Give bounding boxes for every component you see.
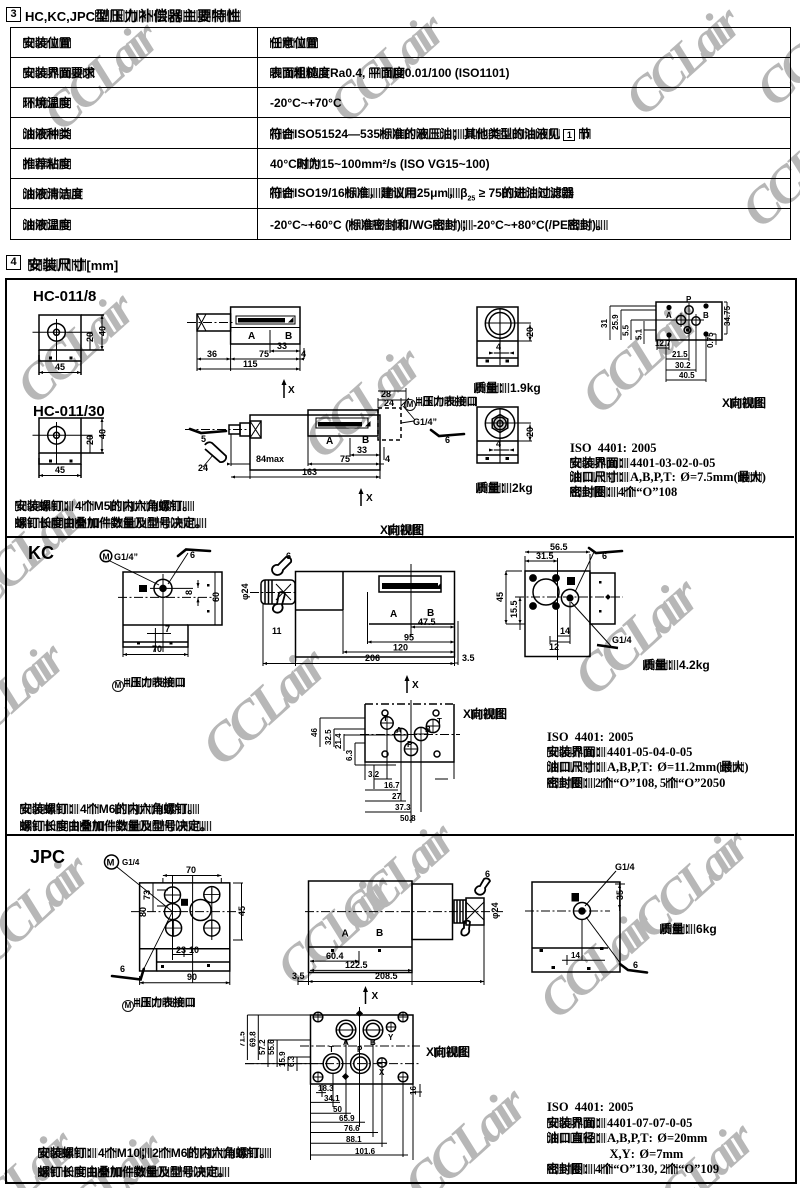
svg-text:4: 4 (301, 349, 306, 359)
svg-text:21.5: 21.5 (672, 350, 688, 359)
svg-text:X: X (379, 1068, 385, 1077)
svg-text:20: 20 (85, 435, 95, 445)
svg-text:115: 115 (243, 359, 258, 369)
svg-text:84max: 84max (256, 454, 284, 464)
svg-text:4: 4 (496, 439, 501, 449)
svg-text:24: 24 (198, 463, 208, 473)
svg-text:73: 73 (142, 890, 152, 900)
svg-text:30.2: 30.2 (675, 361, 691, 370)
svg-text:B: B (703, 311, 709, 320)
svg-text:35: 35 (615, 890, 625, 900)
svg-text:33: 33 (357, 445, 367, 455)
svg-text:4: 4 (385, 454, 390, 464)
svg-text:24: 24 (384, 398, 394, 408)
svg-text:G1/4: G1/4 (122, 858, 140, 867)
svg-text:36: 36 (207, 349, 217, 359)
svg-text:φ24: φ24 (240, 584, 250, 600)
svg-text:16: 16 (409, 1086, 418, 1095)
svg-text:6: 6 (445, 435, 450, 445)
svg-text:88.1: 88.1 (346, 1135, 362, 1144)
svg-text:46: 46 (310, 728, 319, 737)
svg-text:M: M (103, 552, 110, 562)
svg-text:31.5: 31.5 (536, 551, 554, 561)
svg-text:21.4: 21.4 (334, 733, 343, 749)
svg-text:31: 31 (600, 319, 609, 328)
svg-text:76.6: 76.6 (344, 1124, 360, 1133)
svg-text:T: T (329, 1045, 334, 1054)
svg-text:6.3: 6.3 (287, 1055, 296, 1067)
svg-text:A: A (248, 331, 255, 342)
svg-text:3.2: 3.2 (368, 770, 380, 779)
svg-text:57.2: 57.2 (258, 1039, 267, 1055)
svg-text:G1/4”: G1/4” (114, 552, 138, 562)
svg-text:50: 50 (333, 1105, 342, 1114)
svg-text:50.8: 50.8 (400, 814, 416, 823)
svg-text:40.5: 40.5 (679, 371, 695, 380)
svg-text:6.3: 6.3 (345, 749, 354, 761)
svg-text:Y: Y (388, 1033, 394, 1042)
svg-text:208.5: 208.5 (375, 971, 398, 981)
svg-text:6: 6 (485, 869, 490, 879)
svg-text:20: 20 (85, 332, 95, 342)
svg-text:B: B (425, 725, 431, 734)
svg-text:3.5: 3.5 (292, 971, 305, 981)
svg-text:18.3: 18.3 (318, 1084, 334, 1093)
svg-text:70: 70 (186, 865, 196, 875)
svg-text:B: B (376, 928, 383, 939)
svg-text:10: 10 (189, 945, 199, 955)
svg-text:5.1: 5.1 (635, 328, 644, 340)
svg-text:14: 14 (560, 626, 570, 636)
svg-text:60: 60 (211, 592, 221, 602)
svg-text:90: 90 (187, 972, 197, 982)
svg-text:75: 75 (340, 454, 350, 464)
svg-text:60.4: 60.4 (326, 951, 344, 961)
svg-text:40: 40 (98, 326, 108, 336)
svg-text:34.1: 34.1 (324, 1094, 340, 1103)
svg-text:A: A (326, 436, 333, 447)
svg-text:55.6: 55.6 (267, 1039, 276, 1055)
svg-text:X: X (412, 680, 419, 691)
svg-text:37.3: 37.3 (395, 803, 411, 812)
svg-text:6: 6 (602, 551, 607, 561)
svg-text:6: 6 (190, 550, 195, 560)
svg-text:5: 5 (201, 434, 206, 444)
svg-text:69.8: 69.8 (249, 1031, 258, 1047)
svg-text:15.9: 15.9 (278, 1051, 287, 1067)
svg-text:X: X (366, 493, 373, 504)
svg-text:0.75: 0.75 (706, 332, 715, 348)
svg-text:20: 20 (525, 327, 535, 337)
svg-text:7: 7 (165, 624, 170, 634)
svg-text:206: 206 (365, 653, 380, 663)
svg-text:5.5: 5.5 (622, 324, 631, 336)
svg-text:A: A (343, 1038, 349, 1047)
svg-text:P: P (407, 740, 413, 749)
svg-text:6: 6 (120, 964, 125, 974)
svg-text:16.7: 16.7 (384, 781, 400, 790)
svg-text:φ24: φ24 (490, 903, 500, 919)
svg-text:A: A (666, 311, 672, 320)
svg-text:20: 20 (525, 427, 535, 437)
svg-text:M: M (107, 858, 115, 869)
svg-text:P: P (686, 295, 692, 304)
svg-text:33: 33 (277, 341, 287, 351)
svg-text:32.5: 32.5 (324, 729, 333, 745)
svg-text:X: X (372, 991, 379, 1002)
svg-text:B: B (370, 1038, 376, 1047)
svg-text:45: 45 (55, 362, 65, 372)
svg-text:80: 80 (138, 907, 148, 917)
svg-text:11: 11 (272, 626, 282, 636)
svg-text:23: 23 (176, 945, 186, 955)
svg-text:A: A (390, 609, 397, 620)
svg-text:45: 45 (237, 906, 247, 916)
svg-text:3.5: 3.5 (462, 653, 475, 663)
svg-text:12: 12 (549, 642, 559, 652)
svg-text:45: 45 (55, 465, 65, 475)
svg-text:34.75: 34.75 (723, 305, 732, 326)
svg-text:A: A (342, 929, 349, 940)
svg-text:120: 120 (393, 643, 408, 653)
svg-text:6: 6 (286, 551, 291, 561)
svg-text:25.9: 25.9 (611, 314, 620, 330)
svg-text:122.5: 122.5 (345, 960, 368, 970)
svg-text:14: 14 (571, 951, 580, 960)
svg-text:15.5: 15.5 (509, 600, 519, 618)
svg-text:70: 70 (152, 644, 162, 654)
svg-text:75: 75 (259, 349, 269, 359)
svg-text:T: T (437, 717, 442, 726)
svg-text:45: 45 (495, 592, 505, 602)
svg-text:G1/4: G1/4 (612, 635, 632, 645)
svg-text:65.9: 65.9 (339, 1114, 355, 1123)
svg-text:47.5: 47.5 (418, 617, 436, 627)
svg-text:P: P (357, 1045, 363, 1054)
svg-text:4: 4 (496, 342, 501, 352)
svg-text:101.6: 101.6 (355, 1147, 376, 1156)
svg-text:27: 27 (392, 792, 401, 801)
svg-text:40: 40 (98, 429, 108, 439)
svg-text:6: 6 (633, 960, 638, 970)
svg-text:T: T (383, 714, 388, 723)
svg-text:163: 163 (302, 467, 317, 477)
svg-text:12.7: 12.7 (655, 339, 671, 348)
svg-text:A: A (396, 726, 402, 735)
svg-text:95: 95 (404, 633, 414, 643)
svg-text:8: 8 (184, 590, 194, 595)
svg-text:71.5: 71.5 (240, 1031, 247, 1047)
svg-text:G1/4: G1/4 (615, 862, 635, 872)
